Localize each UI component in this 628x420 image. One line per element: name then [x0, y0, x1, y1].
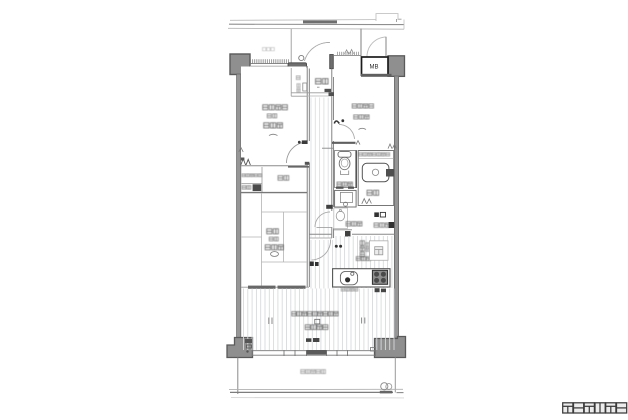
svg-text:MB: MB	[370, 64, 379, 70]
